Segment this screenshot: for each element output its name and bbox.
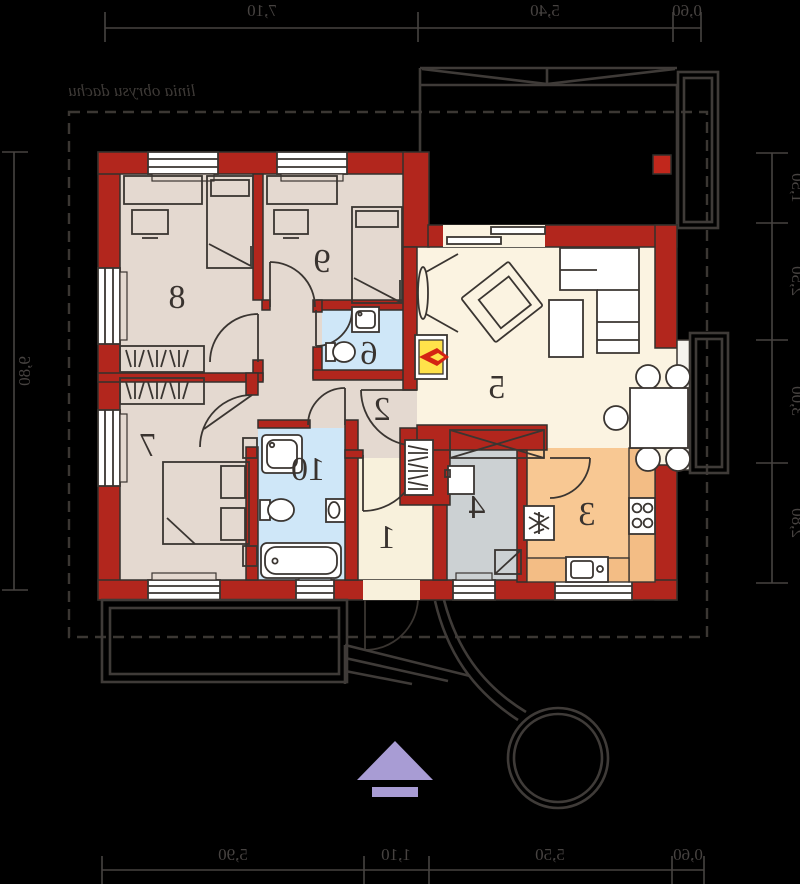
floor-plan-page: 7,10 5,40 0,60 5,90 1,10 5,50 0,60 9,80 … [0,0,800,884]
dim-right-3: 3,00 [788,386,800,416]
terrace-sliding-door [443,225,545,247]
chimney [653,155,671,174]
room-label-9: 9 [314,243,331,280]
dim-left-1: 9,80 [15,356,34,386]
room-label-6: 6 [361,335,378,372]
north-arrow [357,741,433,797]
room-label-1: 1 [379,519,396,556]
kitchen-stove [629,498,655,534]
dim-right-2: 2,50 [788,266,800,296]
dim-bottom-1: 5,90 [218,845,248,864]
room-label-7: 7 [140,427,157,464]
room-label-2: 2 [374,391,391,428]
wc-sink [352,307,379,332]
dim-bottom-2: 1,10 [381,845,411,864]
dim-right-4: 2,80 [788,508,800,538]
exterior-elements [102,600,608,808]
bathroom-sink [326,499,345,522]
room-label-10: 10 [291,451,325,488]
entry-steps [345,645,470,684]
front-door-opening [363,580,420,600]
top-terrace [420,68,718,228]
bottom-terrace [102,600,347,682]
wc-toilet [326,342,355,362]
fireplace [415,335,449,379]
door-front-exterior [365,600,418,650]
bathroom-toilet [260,499,294,521]
window-room7-bottom [148,573,220,600]
floor-plan-canvas: 7,10 5,40 0,60 5,90 1,10 5,50 0,60 9,80 … [0,0,800,884]
hall-closet [405,440,433,495]
roof-outline-label: linia obrysu dachu [68,81,196,100]
window-utility-bottom [453,573,495,600]
room-label-8: 8 [169,279,186,316]
dimension-chain-left: 9,80 [2,152,34,590]
window-room8-left [98,268,127,344]
entry-path [435,600,526,720]
kitchen-fridge [524,506,554,540]
dimension-chain-top: 7,10 5,40 0,60 [105,1,702,42]
kitchen-sink [566,557,608,582]
room-label-5: 5 [489,369,506,406]
dim-bottom-3: 5,50 [535,845,565,864]
living-coffee-table [549,300,583,357]
dimension-chain-right: 1,50 2,50 3,00 2,80 [756,153,800,583]
dim-right-1: 1,50 [788,173,800,203]
room-label-4: 4 [469,489,486,526]
dim-top-2: 5,40 [530,1,560,20]
bathroom-tub [261,543,341,578]
room-label-3: 3 [579,496,596,533]
dim-top-1: 7,10 [247,1,277,20]
dim-top-3: 0,60 [672,1,702,20]
detail-circle [508,708,608,808]
window-room7-left [98,410,127,486]
dimension-chain-bottom: 5,90 1,10 5,50 0,60 [102,845,704,884]
dim-bottom-4: 0,60 [673,845,703,864]
